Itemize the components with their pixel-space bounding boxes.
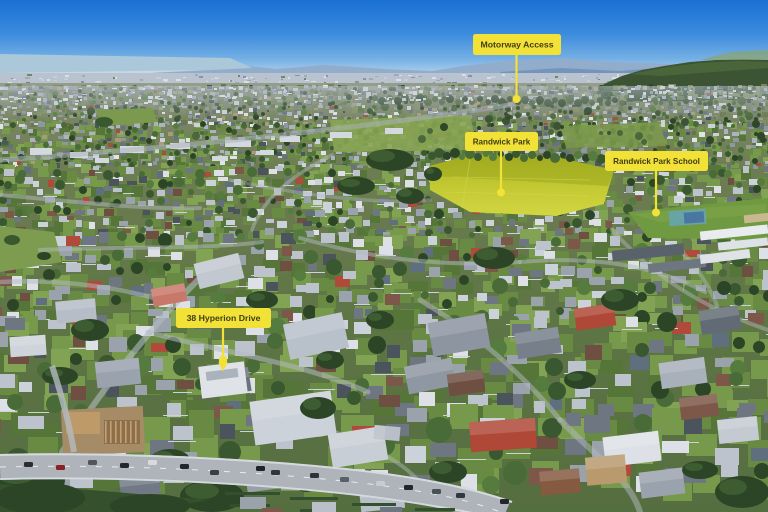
svg-text:Motorway Access: Motorway Access <box>480 40 553 50</box>
svg-text:Randwick Park: Randwick Park <box>473 137 531 146</box>
svg-text:Randwick Park School: Randwick Park School <box>613 157 700 166</box>
svg-text:38 Hyperion Drive: 38 Hyperion Drive <box>187 313 261 323</box>
